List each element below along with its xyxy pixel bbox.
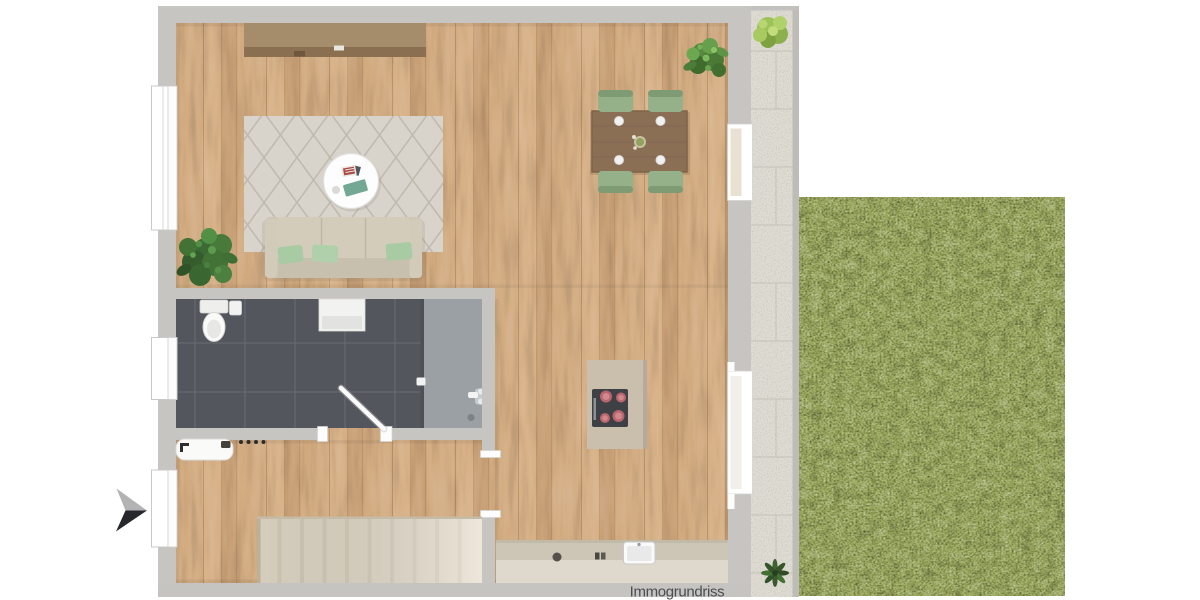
svg-text:Immogrundriss: Immogrundriss [630,584,725,600]
